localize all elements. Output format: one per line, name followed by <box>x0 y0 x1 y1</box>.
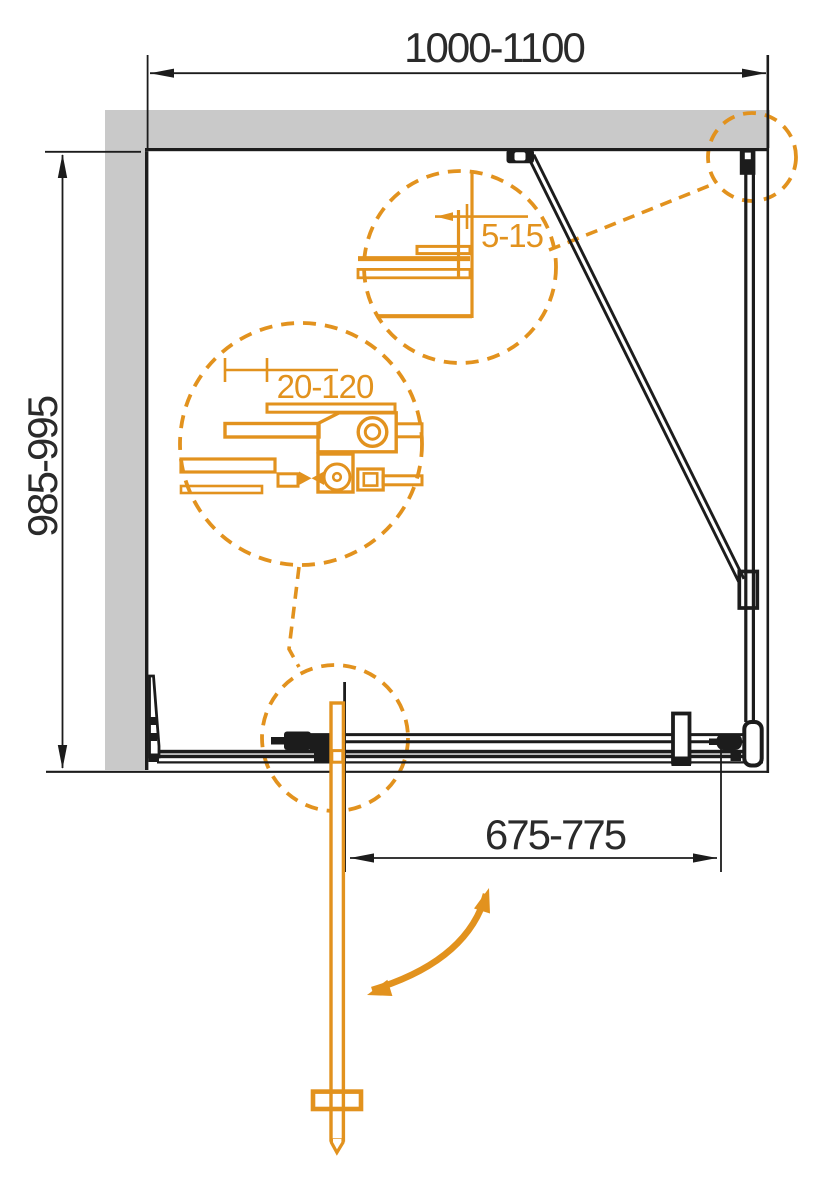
top-wall <box>105 110 770 148</box>
dim-overall-width-label: 1000-1100 <box>334 23 654 75</box>
dim-arrow-down <box>58 745 67 769</box>
dim-door-width-label: 675-775 <box>395 810 715 860</box>
door-pivot-plate <box>332 751 343 763</box>
dim-side-depth-label: 985-995 <box>18 307 64 627</box>
fixed-panel-right <box>739 149 757 722</box>
roller-wheel <box>358 418 387 447</box>
left-wall-profile <box>149 676 160 762</box>
leader-line-top <box>549 183 716 250</box>
rail-stopper <box>673 714 690 763</box>
walls <box>105 110 770 770</box>
door-tip <box>331 1139 343 1153</box>
dim-arrow-left <box>150 69 174 78</box>
left-wall-edge <box>145 151 148 770</box>
dim-wall-gap-label: 5-15 <box>452 216 572 256</box>
gap-dim-arrow <box>436 212 453 221</box>
technical-drawing-canvas: 1000-1100 985-995 675-775 5-15 20-120 <box>0 0 813 1181</box>
dim-arrow-right <box>742 69 766 78</box>
dim-arrow-up <box>58 154 67 178</box>
swing-arrow-head-upper <box>474 888 490 914</box>
top-wall-edge <box>145 148 768 151</box>
drawing-linework <box>0 0 813 1181</box>
door-open <box>313 703 361 1153</box>
detail-circle-roller <box>180 323 422 565</box>
swing-arrow <box>367 888 490 996</box>
corner-connector <box>744 722 761 766</box>
dim-adjustment-label: 20-120 <box>245 367 405 407</box>
adjuster-gear <box>324 464 350 490</box>
dim-arrow-left <box>350 853 374 862</box>
left-wall <box>105 148 147 770</box>
leader-line-bottom <box>289 567 299 667</box>
right-outer-edge <box>767 55 770 773</box>
support-bar <box>507 150 745 582</box>
door-leaf <box>331 703 343 1140</box>
